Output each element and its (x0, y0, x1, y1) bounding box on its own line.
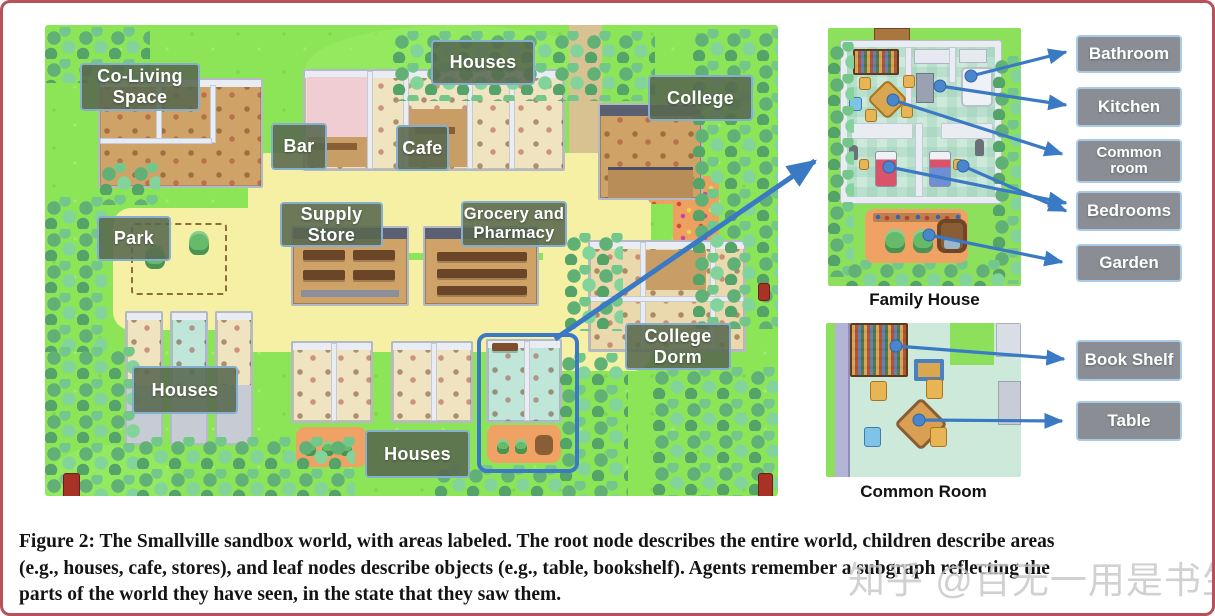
bed-blue (929, 151, 951, 187)
map-label-college: College (648, 75, 753, 121)
side-label-table: Table (1076, 401, 1182, 441)
counter (998, 381, 1021, 425)
store-shelf (437, 269, 527, 278)
side-label-text: Book Shelf (1085, 351, 1174, 370)
side-label-text: Bedrooms (1087, 202, 1171, 221)
grass-patch (950, 323, 994, 365)
red-booth (758, 473, 773, 496)
grass-strip (826, 323, 835, 477)
chair (901, 105, 913, 118)
wall (431, 343, 437, 421)
map-label-park: Park (97, 216, 171, 261)
bedroom-wall (851, 123, 913, 139)
map-label-text: Houses (384, 444, 451, 465)
red-truck (63, 473, 80, 496)
college-deck (608, 167, 693, 198)
map-label-text: Bar (284, 136, 315, 157)
bathroom-sink (959, 49, 987, 63)
tree-cluster (565, 233, 623, 331)
wall (915, 123, 923, 197)
side-label-common-room: Common room (1076, 139, 1182, 183)
tree-cluster (846, 260, 1006, 286)
map-label-text: Park (114, 228, 154, 249)
map-label-supply-store: Supply Store (280, 202, 383, 247)
watermark: 知乎 @百无一用是书生 (848, 550, 1215, 604)
wall (100, 138, 212, 144)
tree (189, 231, 209, 255)
sink-unit (996, 323, 1021, 357)
map-label-text: College Dorm (627, 326, 729, 367)
map-label-college-dorm: College Dorm (625, 323, 731, 370)
wall (367, 71, 373, 169)
side-label-text: Common room (1094, 145, 1164, 178)
map-label-text: Co-Living Space (82, 66, 198, 107)
chair-blue (864, 427, 881, 447)
gazebo (937, 219, 967, 253)
map-label-houses-north: Houses (431, 40, 535, 85)
tree-cluster (828, 42, 854, 277)
wall (949, 47, 956, 83)
bookshelf (853, 49, 899, 75)
bedroom-wall (941, 123, 993, 139)
store-shelf (353, 250, 395, 260)
side-label-text: Garden (1099, 254, 1159, 273)
family-house-floorplan (841, 41, 1001, 203)
wall (331, 343, 337, 421)
chair (926, 379, 943, 399)
tree-cluster (993, 56, 1021, 284)
family-house-caption: Family House (828, 290, 1021, 310)
map-label-text: College (667, 88, 734, 109)
store-shelf (303, 250, 345, 260)
chair (903, 75, 915, 88)
common-room-panel (826, 323, 1021, 477)
side-label-garden: Garden (1076, 244, 1182, 282)
side-label-bathroom: Bathroom (1076, 35, 1182, 73)
bathtub (961, 67, 993, 107)
side-label-text: Bathroom (1089, 45, 1169, 64)
smallville-map: Co-Living Space Houses College Bar Cafe … (45, 25, 778, 496)
tree (885, 229, 905, 253)
map-label-text: Cafe (402, 138, 442, 159)
side-label-text: Kitchen (1098, 98, 1160, 117)
map-label-houses-west: Houses (132, 366, 238, 414)
wall (210, 85, 216, 143)
chair (870, 381, 887, 401)
side-label-bedrooms: Bedrooms (1076, 191, 1182, 231)
building-house-south-1 (291, 341, 373, 423)
store-counter (301, 290, 399, 297)
side-label-book-shelf: Book Shelf (1076, 340, 1182, 381)
store-shelf (437, 252, 527, 261)
wall-picture (914, 359, 944, 381)
kitchen-counter (914, 49, 950, 64)
tree (913, 229, 933, 253)
map-label-cafe: Cafe (396, 125, 449, 171)
wall-strip (835, 323, 850, 477)
map-label-text: Houses (152, 380, 219, 401)
chair (859, 77, 871, 90)
tree-cluster (45, 347, 140, 496)
map-label-text: Houses (450, 52, 517, 73)
gazebo-floor (944, 239, 960, 249)
map-label-bar: Bar (271, 123, 327, 170)
map-label-houses-south: Houses (365, 430, 470, 478)
chair (930, 427, 947, 447)
family-house-panel (828, 28, 1021, 286)
tree-cluster (100, 163, 160, 205)
figure-canvas: Co-Living Space Houses College Bar Cafe … (0, 0, 1215, 616)
map-label-grocery-pharmacy: Grocery and Pharmacy (461, 201, 567, 247)
map-label-text: Supply Store (282, 204, 381, 245)
family-house-highlight (477, 333, 579, 473)
stool (953, 159, 963, 170)
building-house-south-2 (391, 341, 473, 423)
chair (865, 109, 877, 122)
red-kiosk (758, 283, 770, 301)
stool (859, 159, 869, 170)
store-shelf (437, 286, 527, 295)
tree-cluster (137, 437, 355, 496)
common-room-caption: Common Room (826, 482, 1021, 502)
store-shelf (353, 270, 395, 280)
map-label-text: Grocery and Pharmacy (463, 205, 565, 243)
stove (916, 73, 934, 103)
side-label-text: Table (1107, 412, 1150, 431)
bed-red (875, 151, 897, 187)
person (975, 139, 984, 156)
side-label-kitchen: Kitchen (1076, 87, 1182, 127)
map-label-co-living-space: Co-Living Space (80, 63, 200, 111)
store-shelf (303, 270, 345, 280)
family-house-garden (865, 209, 968, 263)
bookshelf (850, 323, 908, 377)
